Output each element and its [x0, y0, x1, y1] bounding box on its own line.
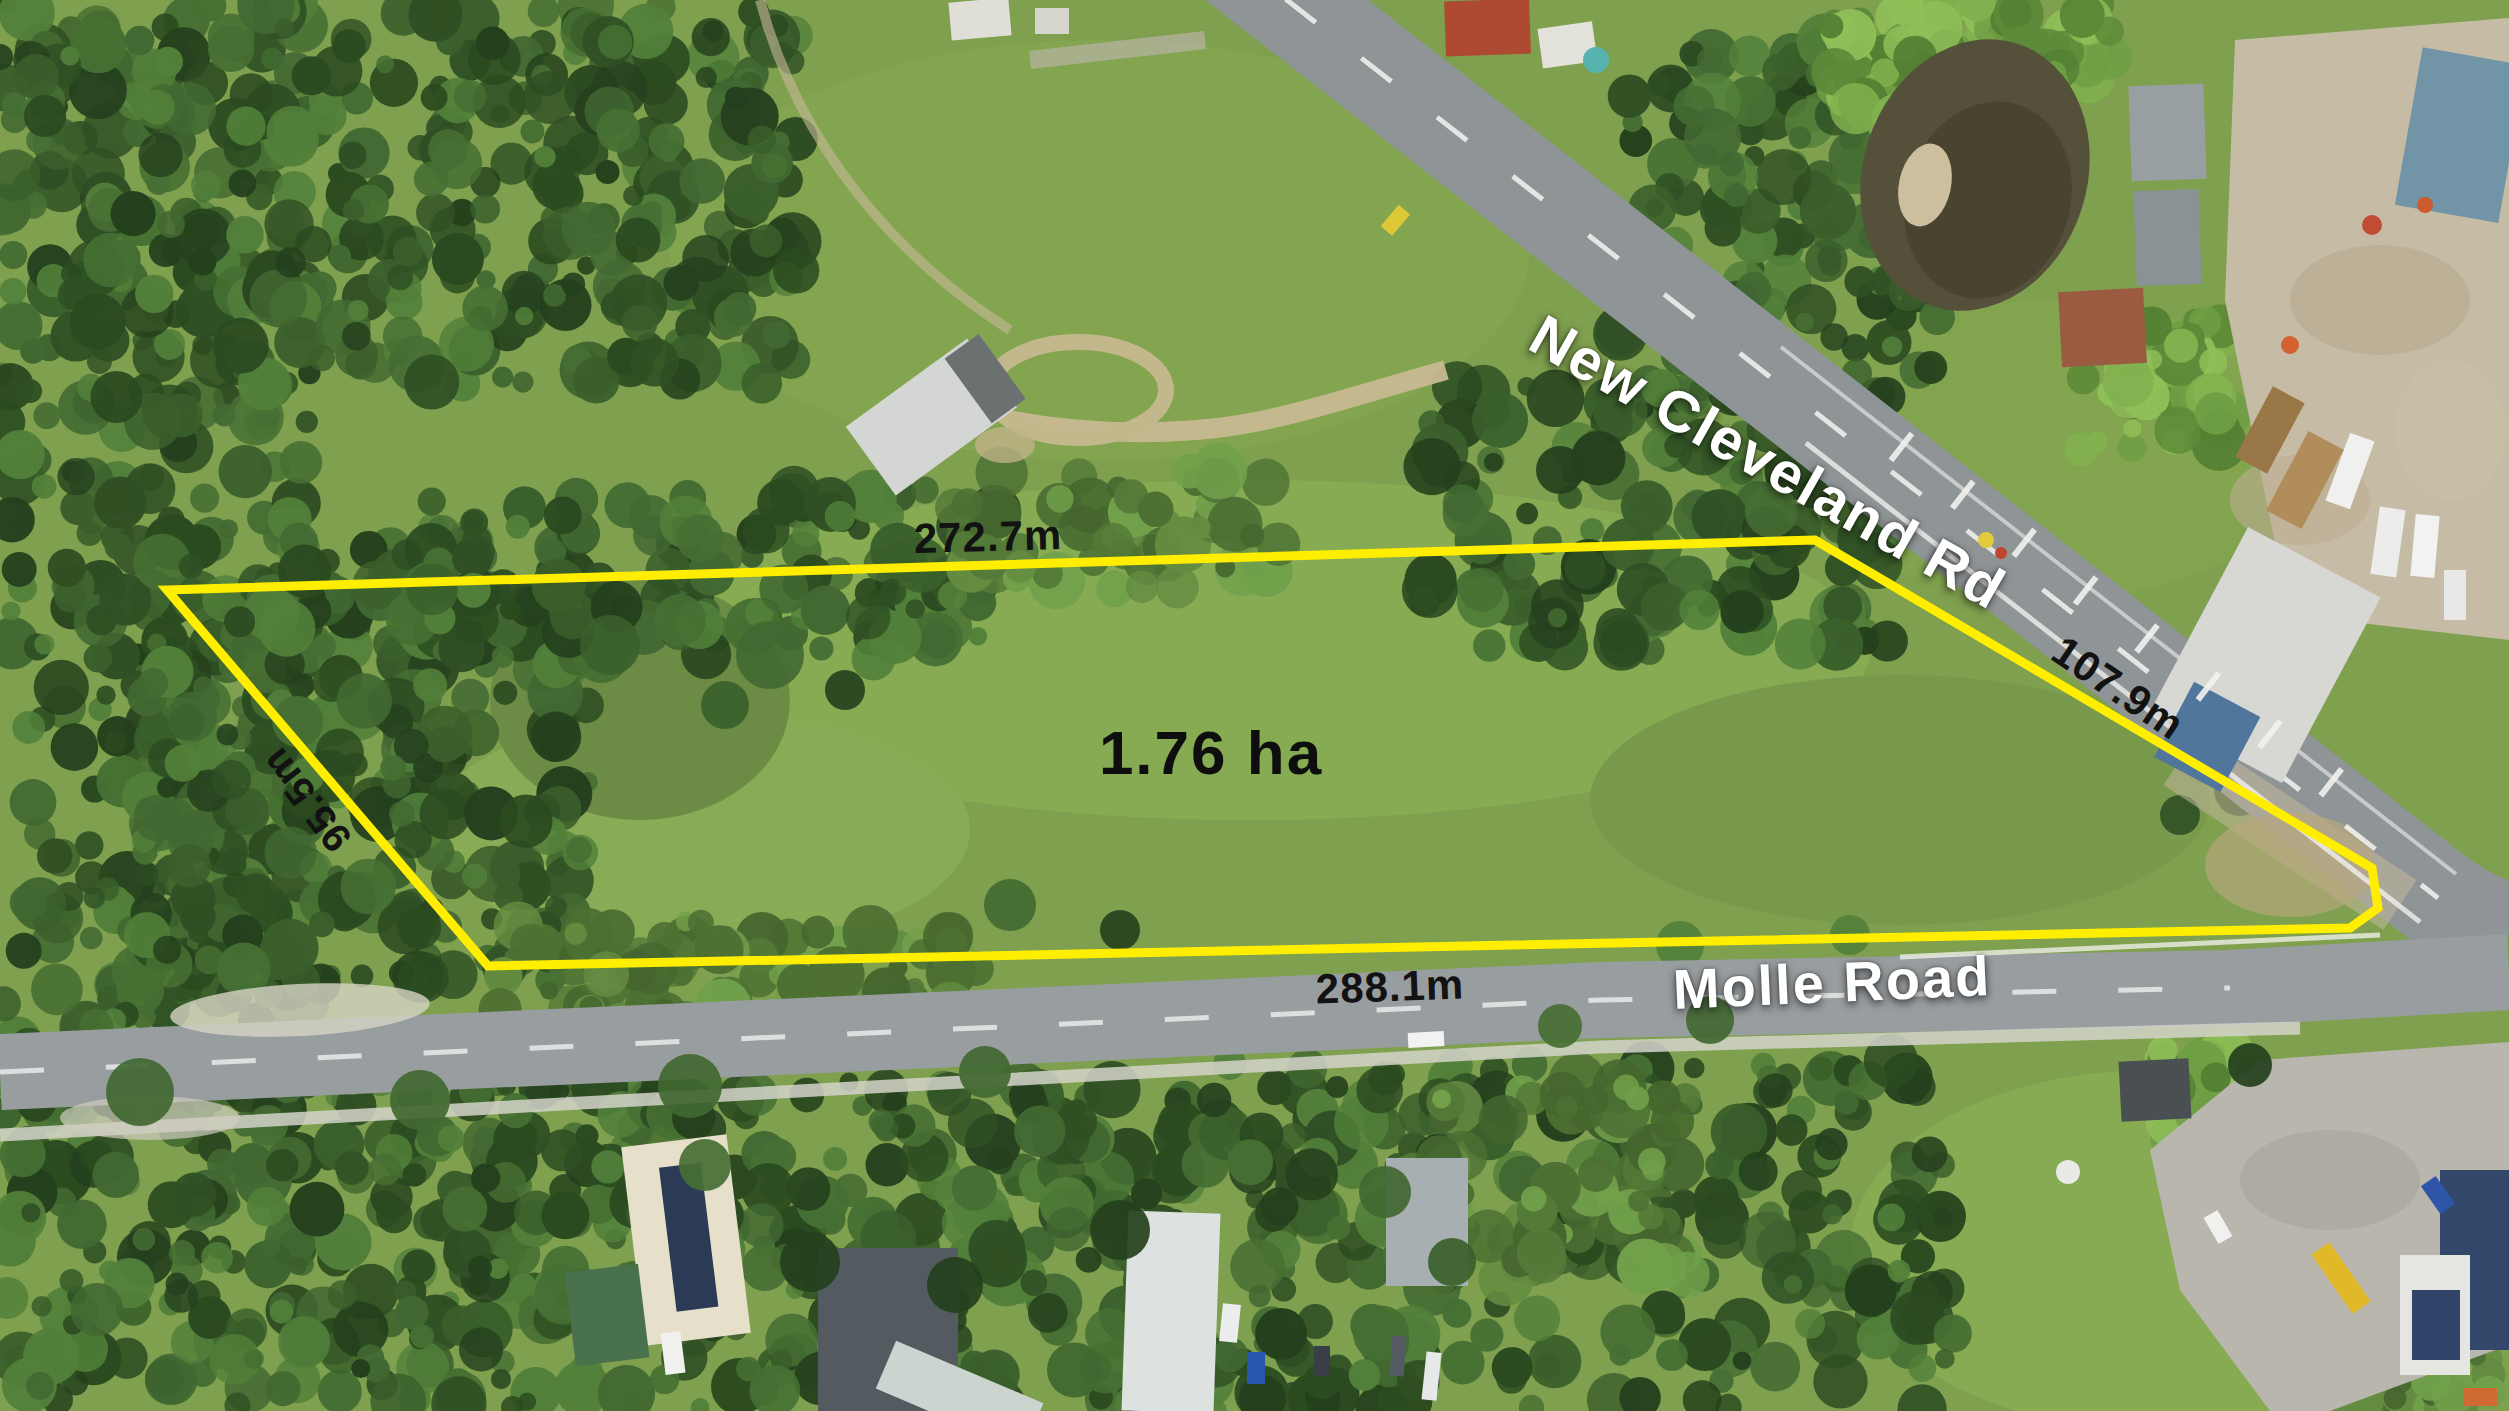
red-roof-house	[1444, 0, 1531, 56]
white-ute	[1408, 1031, 1445, 1048]
green-shed	[565, 1264, 650, 1366]
rusty-roof-shed	[2058, 288, 2147, 367]
aerial-photo-canvas: 1.76 ha 272.7m 95.5m 107.9m 288.1m New C…	[0, 0, 2509, 1411]
aerial-scene	[0, 0, 2509, 1411]
